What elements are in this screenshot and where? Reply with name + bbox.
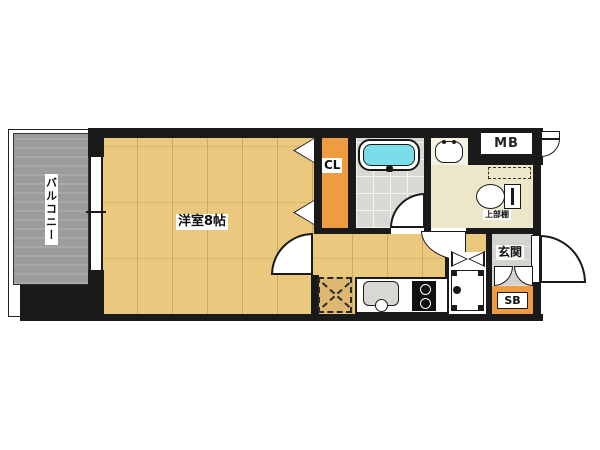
kitchen-faucet-icon	[375, 299, 388, 312]
bathtub-faucet-icon	[386, 166, 393, 172]
meter-box: MB	[479, 131, 534, 156]
wall-horizontal-3	[466, 228, 533, 234]
balcony-wall-block	[20, 285, 94, 317]
faucet-dot	[452, 140, 456, 144]
meter-box-door-arc	[541, 139, 560, 157]
wall-entrance-left	[486, 234, 492, 321]
upper-shelf-label: 上部棚	[483, 210, 511, 220]
toilet-tank-icon	[504, 184, 521, 209]
balcony: バルコニー	[13, 133, 89, 285]
balcony-label: バルコニー	[45, 174, 58, 245]
washer-door-icon	[451, 251, 468, 267]
toilet-bowl-icon	[476, 184, 505, 209]
entrance-label: 玄関	[496, 245, 524, 260]
upper-shelf-outline	[488, 167, 531, 179]
bathtub-water	[363, 144, 415, 166]
burner-icon	[420, 298, 431, 309]
western-room-label: 洋室8帖	[176, 214, 228, 230]
wall-bathroom-right	[424, 138, 431, 234]
window-center-tick	[86, 211, 106, 213]
wall-right-lower	[533, 283, 541, 321]
closet-door-icon	[293, 137, 316, 164]
closet	[322, 138, 348, 228]
closet-door-icon	[293, 199, 316, 226]
floor-plan: バルコニー M	[0, 0, 600, 450]
washer-door-icon	[468, 251, 485, 267]
wall-horizontal-1	[314, 228, 391, 234]
wall-right-upper	[533, 155, 541, 235]
refrigerator-space	[318, 277, 352, 313]
washbasin-icon	[435, 141, 463, 163]
closet-label: CL	[322, 158, 342, 173]
wall-closet-right	[348, 138, 356, 234]
sliding-window	[89, 157, 103, 270]
washing-machine-pan-icon	[451, 270, 484, 311]
faucet-dot	[442, 140, 446, 144]
meter-box-door-leaf	[541, 131, 560, 139]
shoe-box-label: SB	[497, 292, 528, 309]
wall-bottom	[20, 314, 543, 321]
drain-icon	[453, 286, 461, 294]
wall-window-top	[88, 138, 104, 157]
stove-icon	[412, 281, 436, 311]
burner-icon	[420, 284, 431, 295]
tank-slot	[511, 188, 514, 205]
entrance-door-arc	[540, 235, 586, 283]
